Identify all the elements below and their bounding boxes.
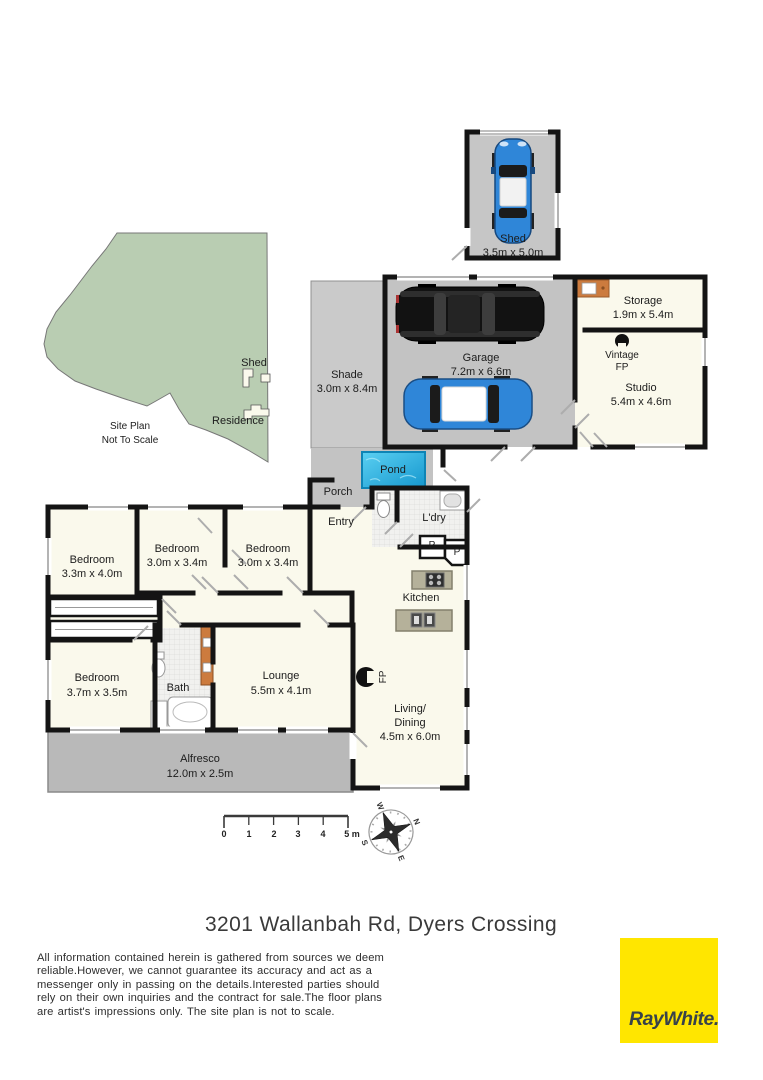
address-title: 3201 Wallanbah Rd, Dyers Crossing	[205, 913, 557, 937]
entry-label: Entry	[328, 516, 354, 528]
vintage-fp-label-2: FP	[616, 362, 629, 374]
shade-area	[311, 281, 385, 448]
storage-label: Storage	[624, 295, 663, 307]
site-plan-shape	[44, 233, 270, 462]
garage-label: Garage	[463, 352, 500, 364]
washing-machine-icon	[440, 491, 465, 510]
living-label-1: Living/	[394, 703, 426, 715]
shade-label: Shade	[331, 369, 363, 381]
raywhite-logo: RayWhite.	[620, 938, 718, 1043]
black-car-top-icon	[396, 284, 544, 344]
compass-rose: N E S W	[348, 791, 432, 874]
bedroom3-label: Bedroom	[246, 543, 291, 555]
disclaimer-line: messenger only in passing on the details…	[37, 979, 384, 992]
lounge-dims: 5.5m x 4.1m	[251, 685, 312, 697]
stove-bench-icon	[412, 571, 452, 589]
site-shed-icon-2	[261, 374, 270, 382]
blue-car-top-icon-2	[404, 376, 532, 432]
storage-dims: 1.9m x 5.4m	[613, 309, 674, 321]
alfresco-label: Alfresco	[180, 753, 220, 765]
site-residence-label: Residence	[212, 415, 264, 427]
laundry-label: L'dry	[422, 512, 446, 524]
shed-label: Shed	[500, 233, 526, 245]
raywhite-logo-text: RayWhite.	[629, 1008, 719, 1031]
disclaimer-line: reliable.However, we cannot guarantee it…	[37, 965, 384, 978]
pantry-label-1: P	[429, 540, 436, 552]
bedroom4-dims: 3.7m x 3.5m	[67, 687, 128, 699]
bathtub-icon	[168, 697, 213, 728]
storage-cabinet-icon	[577, 280, 609, 297]
bedroom1-dims: 3.3m x 4.0m	[62, 568, 123, 580]
kitchen-label: Kitchen	[403, 592, 440, 604]
scale-tick-3: 3	[295, 828, 300, 840]
scale-tick-5: 5 m	[344, 828, 360, 840]
bath-label: Bath	[167, 682, 190, 694]
disclaimer-line: All information contained herein is gath…	[37, 952, 384, 965]
bedroom1-label: Bedroom	[70, 554, 115, 566]
lounge-label: Lounge	[263, 670, 300, 682]
bedroom2-label: Bedroom	[155, 543, 200, 555]
studio-label: Studio	[625, 382, 656, 394]
compass-w: W	[374, 801, 385, 812]
pantry-label-2: P	[454, 547, 461, 559]
bedroom2-dims: 3.0m x 3.4m	[147, 557, 208, 569]
living-label-2: Dining	[394, 717, 425, 729]
pond-label: Pond	[380, 464, 406, 476]
living-dims: 4.5m x 6.0m	[380, 731, 441, 743]
alfresco-dims: 12.0m x 2.5m	[167, 768, 234, 780]
site-note-1: Site Plan	[110, 421, 150, 433]
disclaimer-text: All information contained herein is gath…	[37, 952, 384, 1019]
garage-dims: 7.2m x 6.6m	[451, 366, 512, 378]
shade-dims: 3.0m x 8.4m	[317, 383, 378, 395]
compass-s: S	[359, 839, 370, 848]
sink-bench-icon	[396, 610, 452, 631]
bedroom4-label: Bedroom	[75, 672, 120, 684]
scale-tick-4: 4	[320, 828, 325, 840]
vintage-fp-label-1: Vintage	[605, 350, 639, 362]
scale-bar	[224, 816, 348, 828]
blue-car-top-icon	[491, 139, 535, 243]
bedroom3-dims: 3.0m x 3.4m	[238, 557, 299, 569]
shed-dims: 3.5m x 5.0m	[483, 247, 544, 259]
site-shed-label: Shed	[241, 357, 267, 369]
floor-plan-page: N E S W Shed 3.5m x 5.0m Garage 7.2m x 6…	[0, 0, 763, 1080]
disclaimer-line: rely on their own inquiries and the cont…	[37, 992, 384, 1005]
disclaimer-line: are artist's impressions only. The site …	[37, 1006, 384, 1019]
fireplace-label: FP	[378, 671, 390, 684]
scale-tick-1: 1	[246, 828, 251, 840]
studio-dims: 5.4m x 4.6m	[611, 396, 672, 408]
site-note-2: Not To Scale	[102, 435, 159, 447]
porch-label: Porch	[324, 486, 353, 498]
scale-tick-0: 0	[221, 828, 226, 840]
compass-e: E	[396, 854, 407, 863]
toilet-icon-2	[377, 493, 390, 518]
scale-tick-2: 2	[271, 828, 276, 840]
compass-n: N	[411, 817, 422, 826]
